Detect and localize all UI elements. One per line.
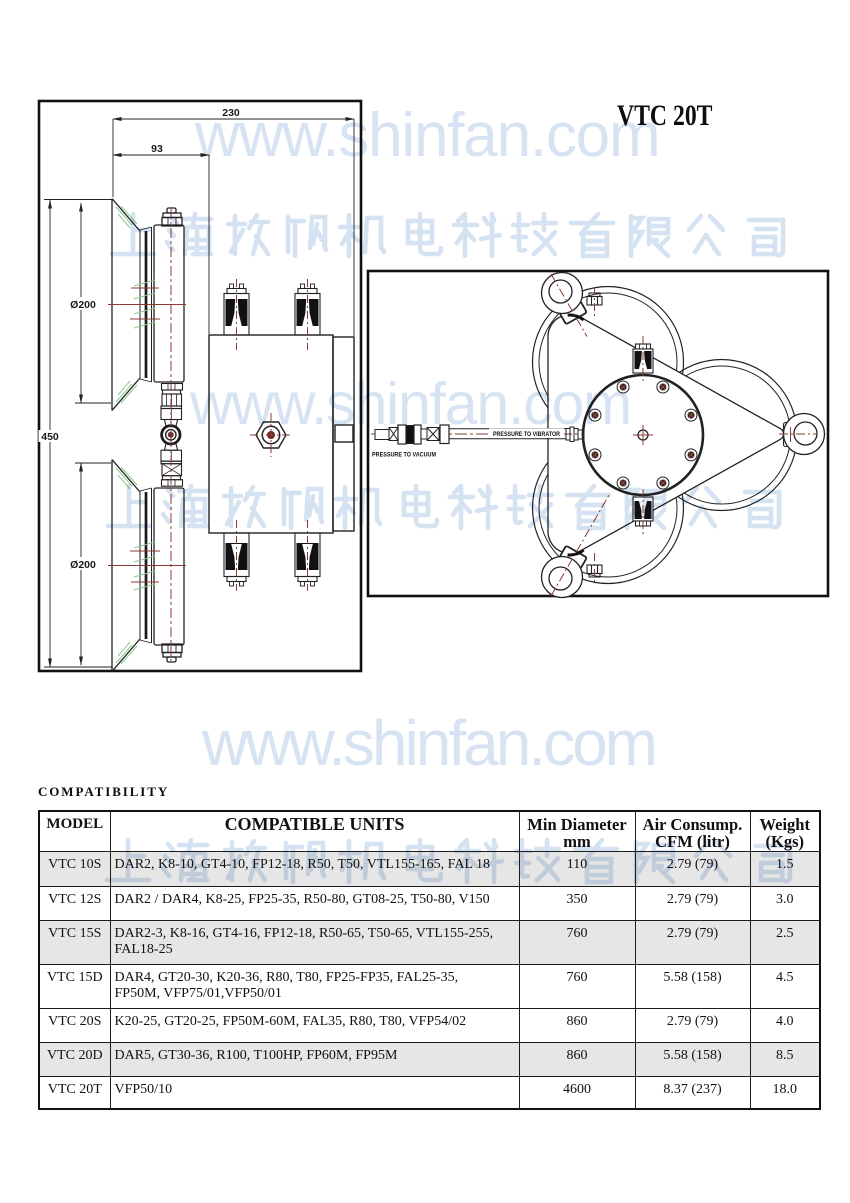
svg-text:PRESSURE TO VIBRATOR: PRESSURE TO VIBRATOR (493, 431, 560, 438)
svg-text:Ø200: Ø200 (70, 299, 96, 311)
svg-text:230: 230 (222, 107, 240, 119)
svg-text:PRESSURE TO VACUUM: PRESSURE TO VACUUM (372, 452, 436, 459)
svg-text:450: 450 (41, 431, 59, 443)
svg-text:93: 93 (151, 143, 163, 155)
svg-text:Ø200: Ø200 (70, 559, 96, 571)
